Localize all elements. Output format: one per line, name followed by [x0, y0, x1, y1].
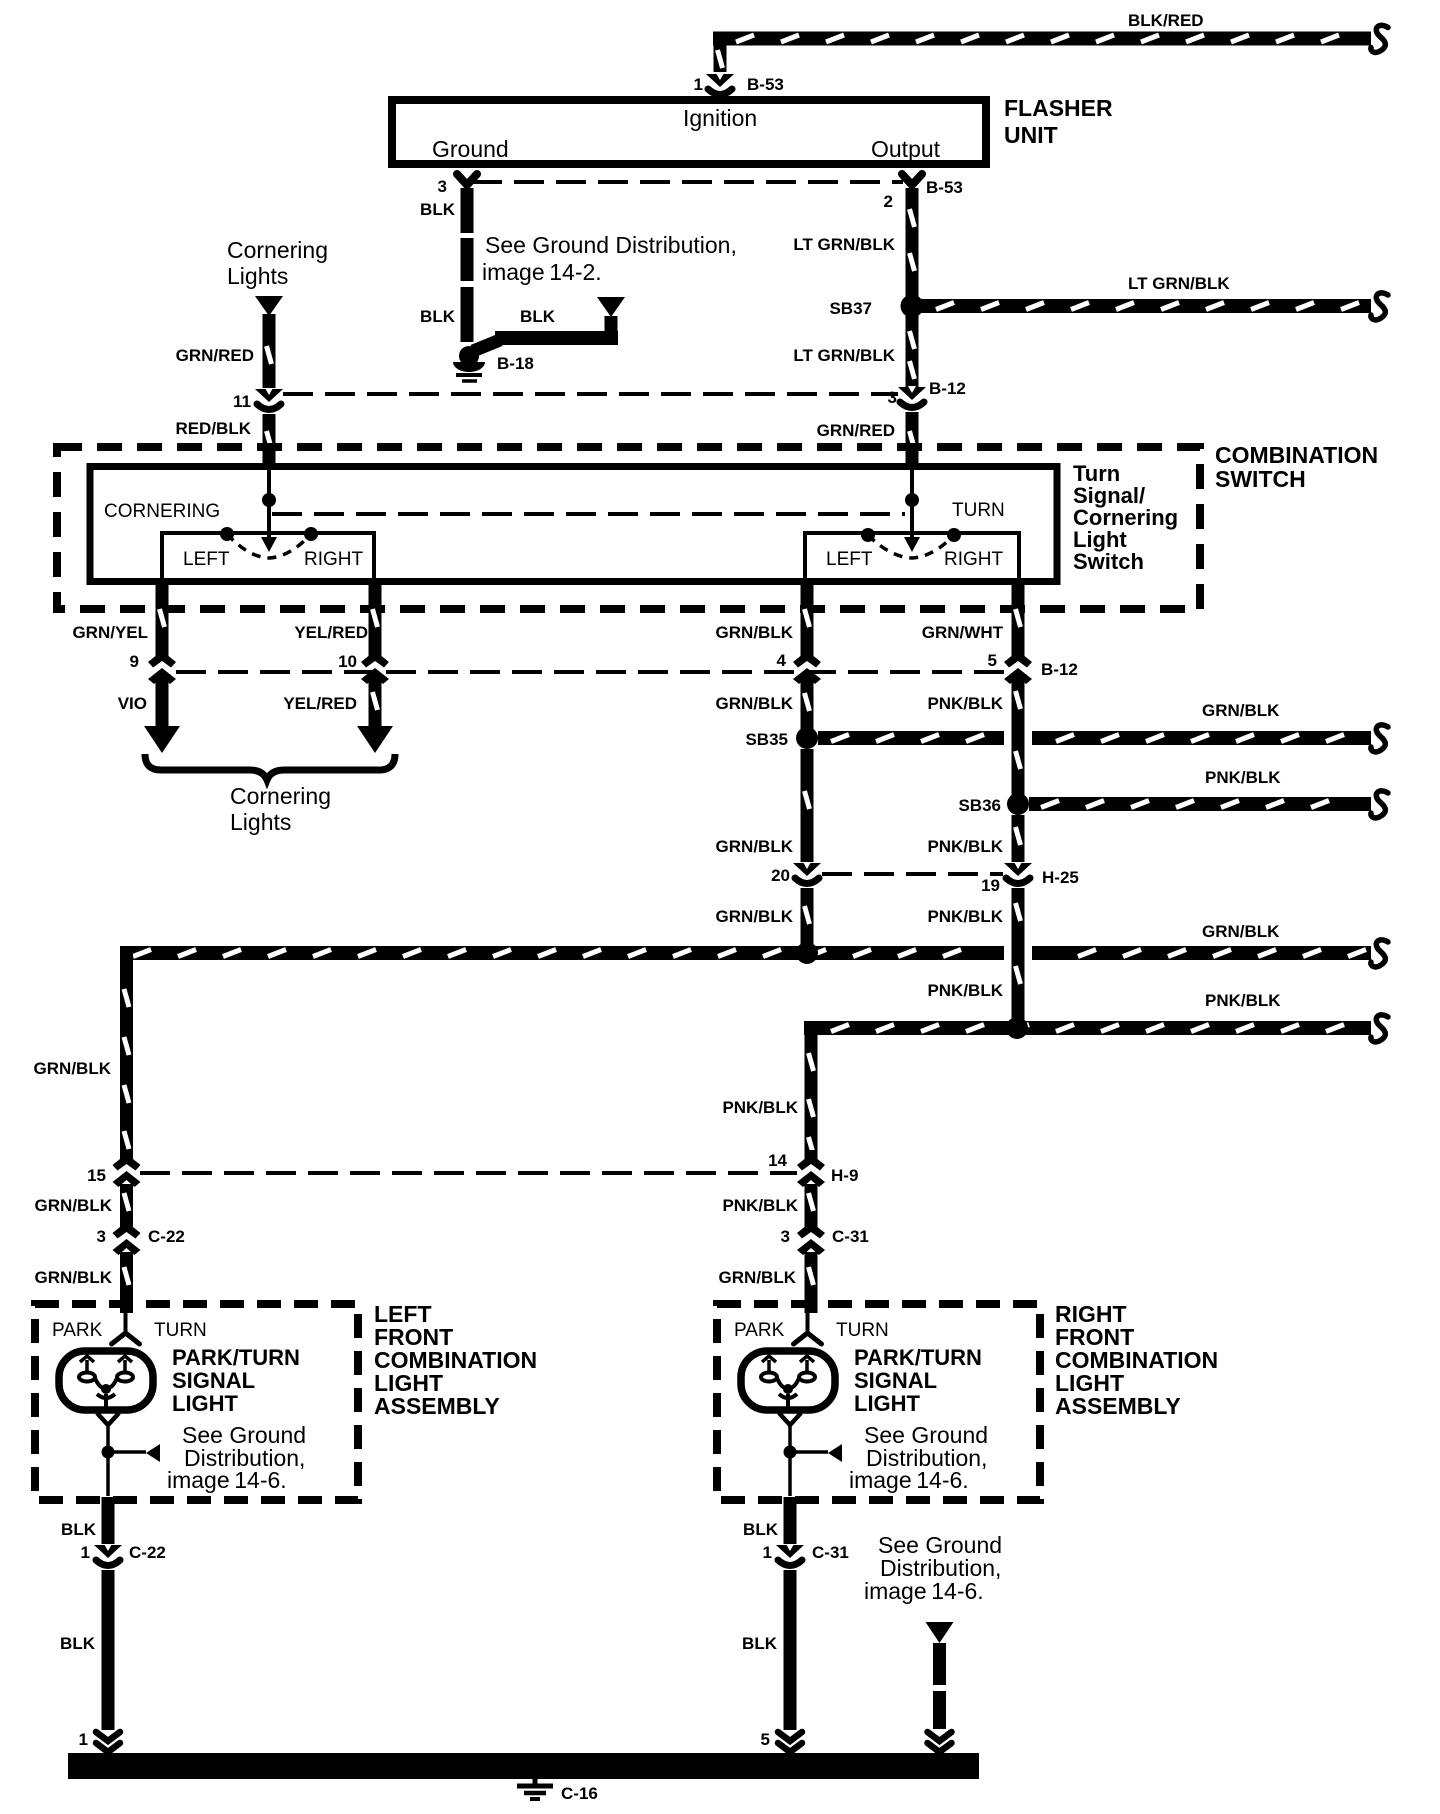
svg-text:YEL/RED: YEL/RED [294, 623, 368, 642]
svg-text:1: 1 [81, 1543, 90, 1562]
svg-text:RIGHT: RIGHT [304, 549, 364, 570]
svg-text:C-31: C-31 [832, 1227, 869, 1246]
svg-text:BLK: BLK [743, 1520, 779, 1539]
svg-text:B-12: B-12 [1041, 660, 1078, 679]
svg-text:GRN/BLK: GRN/BLK [716, 837, 794, 856]
svg-text:LIGHT: LIGHT [854, 1391, 921, 1416]
svg-text:C-22: C-22 [129, 1543, 166, 1562]
svg-text:image 14-6.: image 14-6. [167, 1467, 287, 1493]
svg-text:1: 1 [79, 1730, 88, 1749]
svg-text:GRN/WHT: GRN/WHT [922, 623, 1004, 642]
svg-text:PNK/BLK: PNK/BLK [1205, 768, 1281, 787]
svg-text:BLK: BLK [61, 1520, 97, 1539]
svg-text:TURN: TURN [154, 1320, 207, 1341]
svg-text:B-53: B-53 [747, 75, 784, 94]
svg-text:GRN/BLK: GRN/BLK [716, 623, 794, 642]
svg-text:TURN: TURN [952, 500, 1005, 521]
svg-text:BLK: BLK [420, 307, 456, 326]
svg-text:BLK: BLK [742, 1634, 778, 1653]
svg-text:Lights: Lights [230, 809, 291, 835]
svg-text:PNK/BLK: PNK/BLK [927, 907, 1003, 926]
svg-text:YEL/RED: YEL/RED [283, 694, 357, 713]
svg-text:C-31: C-31 [812, 1543, 849, 1562]
svg-text:GRN/RED: GRN/RED [176, 346, 254, 365]
svg-text:PNK/BLK: PNK/BLK [927, 694, 1003, 713]
svg-text:UNIT: UNIT [1004, 122, 1058, 148]
svg-text:GRN/BLK: GRN/BLK [1202, 701, 1280, 720]
svg-text:3: 3 [97, 1227, 106, 1246]
svg-text:PARK: PARK [734, 1320, 785, 1341]
svg-text:BLK: BLK [60, 1634, 96, 1653]
svg-text:B-53: B-53 [926, 178, 963, 197]
svg-text:B-12: B-12 [929, 379, 966, 398]
svg-text:SB37: SB37 [829, 299, 872, 318]
svg-text:3: 3 [438, 177, 447, 196]
svg-text:PNK/BLK: PNK/BLK [927, 981, 1003, 1000]
svg-text:ASSEMBLY: ASSEMBLY [374, 1393, 500, 1419]
svg-text:Cornering: Cornering [230, 783, 331, 809]
svg-text:GRN/RED: GRN/RED [817, 421, 895, 440]
svg-text:20: 20 [771, 866, 790, 885]
svg-text:1: 1 [763, 1543, 772, 1562]
svg-text:10: 10 [338, 652, 357, 671]
svg-text:PARK: PARK [52, 1320, 103, 1341]
svg-text:3: 3 [781, 1227, 790, 1246]
svg-text:VIO: VIO [118, 694, 147, 713]
svg-text:image 14-6.: image 14-6. [864, 1578, 984, 1604]
svg-text:GRN/BLK: GRN/BLK [716, 694, 794, 713]
svg-text:Ignition: Ignition [683, 105, 757, 131]
svg-text:SB36: SB36 [958, 796, 1001, 815]
svg-text:15: 15 [87, 1166, 106, 1185]
svg-text:GRN/BLK: GRN/BLK [719, 1268, 797, 1287]
svg-text:FLASHER: FLASHER [1004, 95, 1113, 121]
svg-text:PNK/BLK: PNK/BLK [722, 1196, 798, 1215]
svg-text:2: 2 [884, 192, 893, 211]
svg-text:LT GRN/BLK: LT GRN/BLK [793, 346, 895, 365]
svg-text:ASSEMBLY: ASSEMBLY [1055, 1393, 1181, 1419]
svg-text:5: 5 [988, 651, 997, 670]
svg-text:LEFT: LEFT [826, 549, 873, 570]
svg-text:14: 14 [768, 1151, 787, 1170]
svg-text:5: 5 [761, 1730, 770, 1749]
svg-text:H-9: H-9 [831, 1166, 858, 1185]
svg-text:H-25: H-25 [1042, 868, 1079, 887]
svg-text:GRN/BLK: GRN/BLK [35, 1268, 113, 1287]
svg-text:PARK/TURN: PARK/TURN [854, 1345, 982, 1370]
svg-text:GRN/BLK: GRN/BLK [1202, 922, 1280, 941]
svg-text:SIGNAL: SIGNAL [854, 1368, 937, 1393]
svg-text:GRN/BLK: GRN/BLK [35, 1196, 113, 1215]
svg-text:Switch: Switch [1073, 549, 1144, 574]
svg-text:LEFT: LEFT [183, 549, 230, 570]
svg-text:PARK/TURN: PARK/TURN [172, 1345, 300, 1370]
svg-text:B-18: B-18 [497, 354, 534, 373]
svg-text:1: 1 [694, 75, 703, 94]
svg-text:image 14-2.: image 14-2. [482, 259, 602, 285]
svg-text:RED/BLK: RED/BLK [175, 419, 251, 438]
svg-text:3: 3 [888, 388, 897, 407]
svg-text:4: 4 [777, 651, 787, 670]
svg-text:Ground: Ground [432, 136, 509, 162]
svg-text:11: 11 [233, 392, 251, 411]
svg-text:Lights: Lights [227, 263, 288, 289]
svg-text:Cornering: Cornering [227, 237, 328, 263]
svg-text:SWITCH: SWITCH [1215, 466, 1306, 492]
svg-text:GRN/YEL: GRN/YEL [72, 623, 148, 642]
svg-text:GRN/BLK: GRN/BLK [34, 1059, 112, 1078]
svg-text:PNK/BLK: PNK/BLK [1205, 991, 1281, 1010]
svg-text:C-22: C-22 [148, 1227, 185, 1246]
svg-text:SB35: SB35 [745, 730, 788, 749]
svg-text:PNK/BLK: PNK/BLK [927, 837, 1003, 856]
svg-text:LT GRN/BLK: LT GRN/BLK [1128, 274, 1230, 293]
svg-text:LT GRN/BLK: LT GRN/BLK [793, 235, 895, 254]
svg-text:C-16: C-16 [561, 1784, 598, 1803]
svg-text:COMBINATION: COMBINATION [1215, 442, 1378, 468]
svg-text:See Ground Distribution,: See Ground Distribution, [485, 232, 737, 258]
svg-text:LIGHT: LIGHT [172, 1391, 239, 1416]
svg-text:TURN: TURN [836, 1320, 889, 1341]
svg-text:SIGNAL: SIGNAL [172, 1368, 255, 1393]
svg-text:CORNERING: CORNERING [104, 501, 220, 522]
svg-text:RIGHT: RIGHT [944, 549, 1004, 570]
svg-text:image 14-6.: image 14-6. [849, 1467, 969, 1493]
svg-text:PNK/BLK: PNK/BLK [722, 1098, 798, 1117]
svg-text:GRN/BLK: GRN/BLK [716, 907, 794, 926]
svg-text:BLK: BLK [520, 307, 556, 326]
svg-text:9: 9 [130, 652, 139, 671]
svg-text:19: 19 [981, 876, 1000, 895]
svg-text:BLK: BLK [420, 200, 456, 219]
svg-text:BLK/RED: BLK/RED [1128, 11, 1204, 30]
svg-text:Output: Output [871, 136, 941, 162]
